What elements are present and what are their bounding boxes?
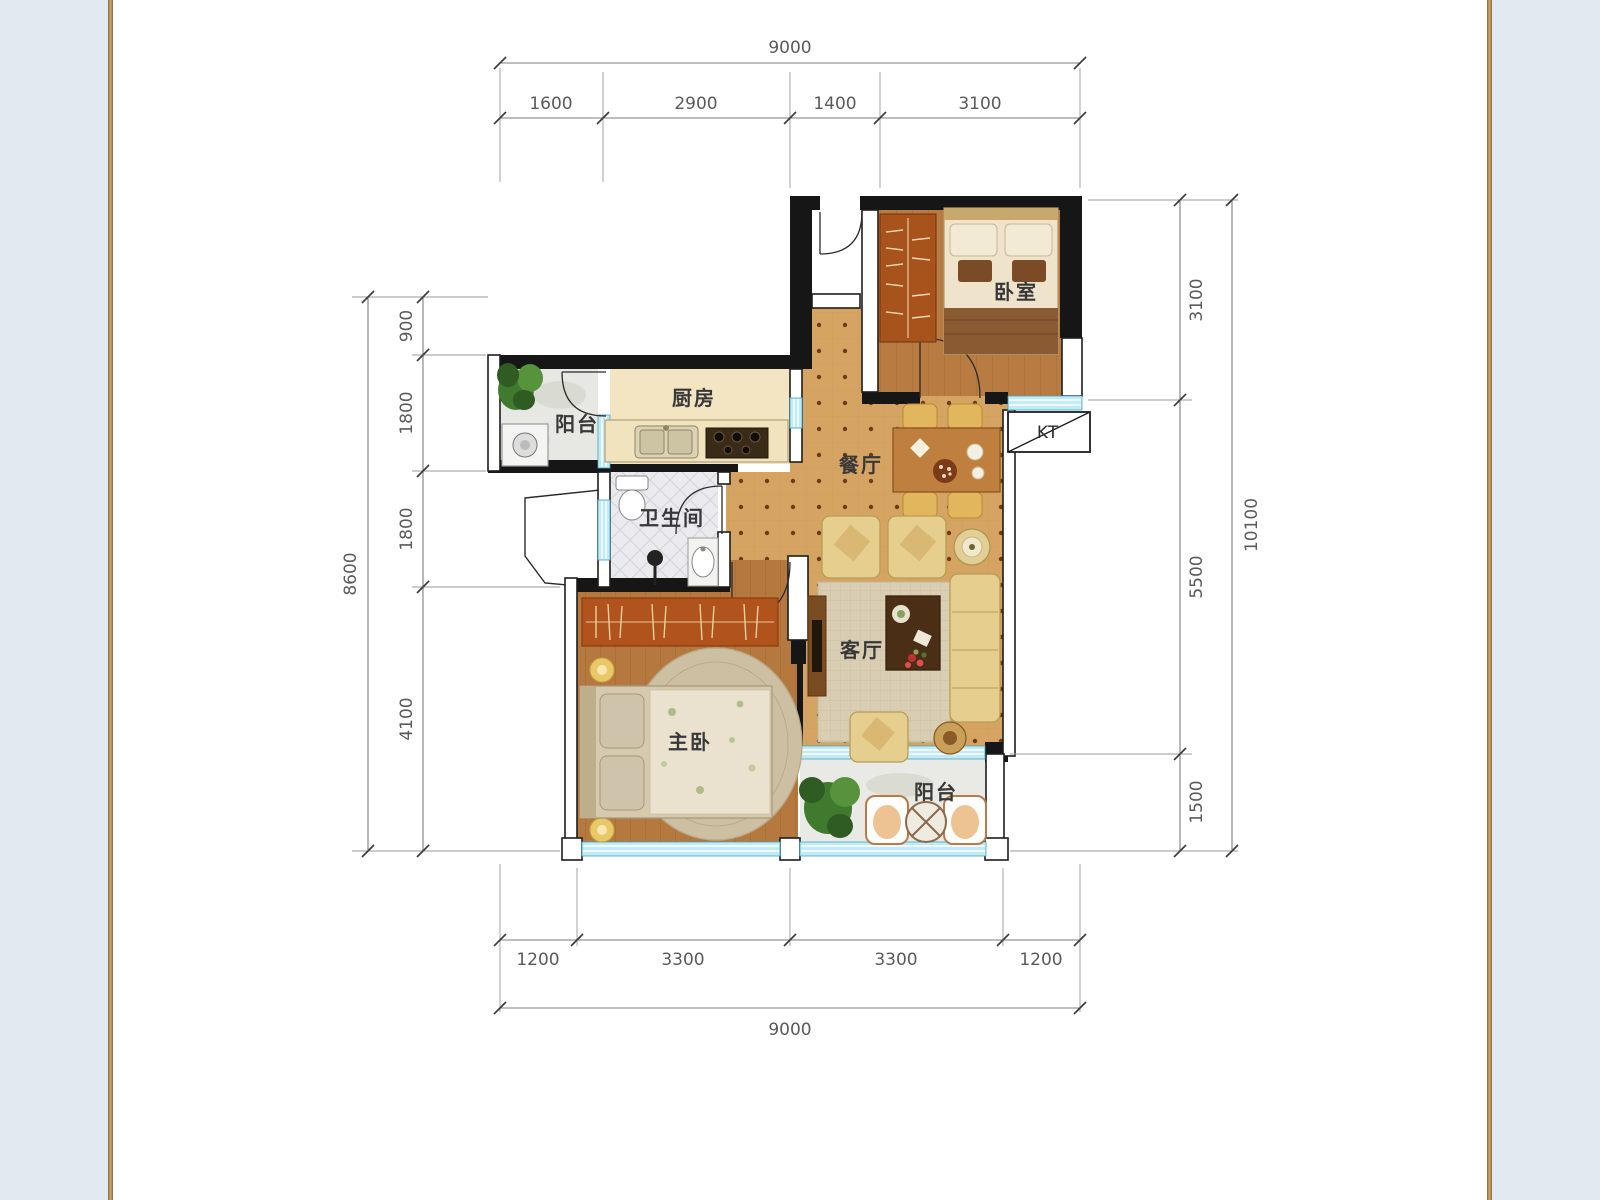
room-label-service-balcony: 阳台 <box>555 412 599 436</box>
room-label-dining: 餐厅 <box>839 453 883 477</box>
dim-right-3: 1500 <box>1187 780 1207 823</box>
washer-drum <box>520 440 530 450</box>
wall-master-east-frame <box>788 556 808 640</box>
window-kt <box>1008 396 1082 410</box>
room-label-kitchen: 厨房 <box>672 386 716 410</box>
tv <box>812 620 822 672</box>
faucet <box>663 425 669 431</box>
burner <box>724 446 732 454</box>
wall <box>1062 338 1082 396</box>
window-bathroom <box>598 500 610 560</box>
dim-bottom-2: 3300 <box>661 950 704 970</box>
faucet <box>701 547 706 552</box>
sofa <box>950 574 1000 722</box>
fruit-plate <box>933 459 957 483</box>
chair-cushion <box>873 805 901 839</box>
sink-bowl <box>668 430 692 454</box>
dim-bottom-total: 9000 <box>768 1020 811 1040</box>
entry-door <box>820 212 862 254</box>
chair <box>903 492 937 518</box>
wall-bedroom-east <box>1060 196 1082 338</box>
wall-balcony-east <box>986 754 1004 844</box>
dim-right-1: 3100 <box>1187 278 1207 321</box>
plate <box>972 467 984 479</box>
room-label-ac: KT <box>1037 423 1059 443</box>
wall-entry-column <box>790 196 812 368</box>
burner <box>714 432 724 442</box>
floorplan-svg: KT <box>0 0 1600 1200</box>
room-label-bathroom: 卫生间 <box>639 506 705 530</box>
dim-bottom-4: 1200 <box>1019 950 1062 970</box>
chair <box>903 404 937 430</box>
burner <box>732 432 742 442</box>
dim-left-total: 8600 <box>341 552 361 595</box>
dim-right-2: 5500 <box>1187 555 1207 598</box>
ac-niche: KT <box>1008 412 1090 452</box>
dim-left-4: 4100 <box>397 697 417 740</box>
dim-top-total: 9000 <box>768 38 811 58</box>
wall <box>862 392 920 404</box>
wall-dining-east <box>1003 410 1015 756</box>
pillar <box>562 838 582 860</box>
dim-top-2: 2900 <box>674 94 717 114</box>
wall-master-west <box>565 578 577 855</box>
room-label-balcony: 阳台 <box>914 780 958 804</box>
burner <box>750 432 760 442</box>
dim-top-1: 1600 <box>529 94 572 114</box>
chair <box>948 404 982 430</box>
flue-outline <box>525 490 600 588</box>
chair <box>948 492 982 518</box>
wall <box>718 472 730 484</box>
dim-left-3: 1800 <box>397 507 417 550</box>
entry-threshold <box>812 294 860 308</box>
dim-bottom-3: 3300 <box>874 950 917 970</box>
dim-top-4: 3100 <box>958 94 1001 114</box>
sink-bowl <box>640 430 664 454</box>
pillar <box>985 838 1008 860</box>
plate <box>967 444 983 460</box>
room-label-bedroom: 卧室 <box>994 280 1038 304</box>
dim-bottom-1: 1200 <box>516 950 559 970</box>
room-label-living: 客厅 <box>839 638 884 662</box>
dim-top-3: 1400 <box>813 94 856 114</box>
dim-left-2: 1800 <box>397 391 417 434</box>
kitchen-furniture <box>605 420 788 462</box>
toilet-tank <box>616 476 648 490</box>
room-label-master: 主卧 <box>668 730 712 754</box>
page: KT <box>0 0 1600 1200</box>
pillar <box>780 838 800 860</box>
window-kitchen-pass <box>790 398 802 428</box>
dim-right-total: 10100 <box>1242 498 1262 552</box>
wall-bath-east <box>718 532 730 587</box>
window-master-south <box>582 842 780 856</box>
chair-cushion <box>951 805 979 839</box>
wall-kitchen-south <box>598 464 738 472</box>
burner <box>742 446 750 454</box>
dim-left-1: 900 <box>397 310 417 342</box>
marble-vein <box>534 381 586 409</box>
wall-bedroom-west <box>862 210 878 392</box>
wall-nub <box>791 640 806 664</box>
master-furniture <box>580 598 802 842</box>
floor-drain <box>647 550 663 566</box>
wall <box>985 392 1008 404</box>
